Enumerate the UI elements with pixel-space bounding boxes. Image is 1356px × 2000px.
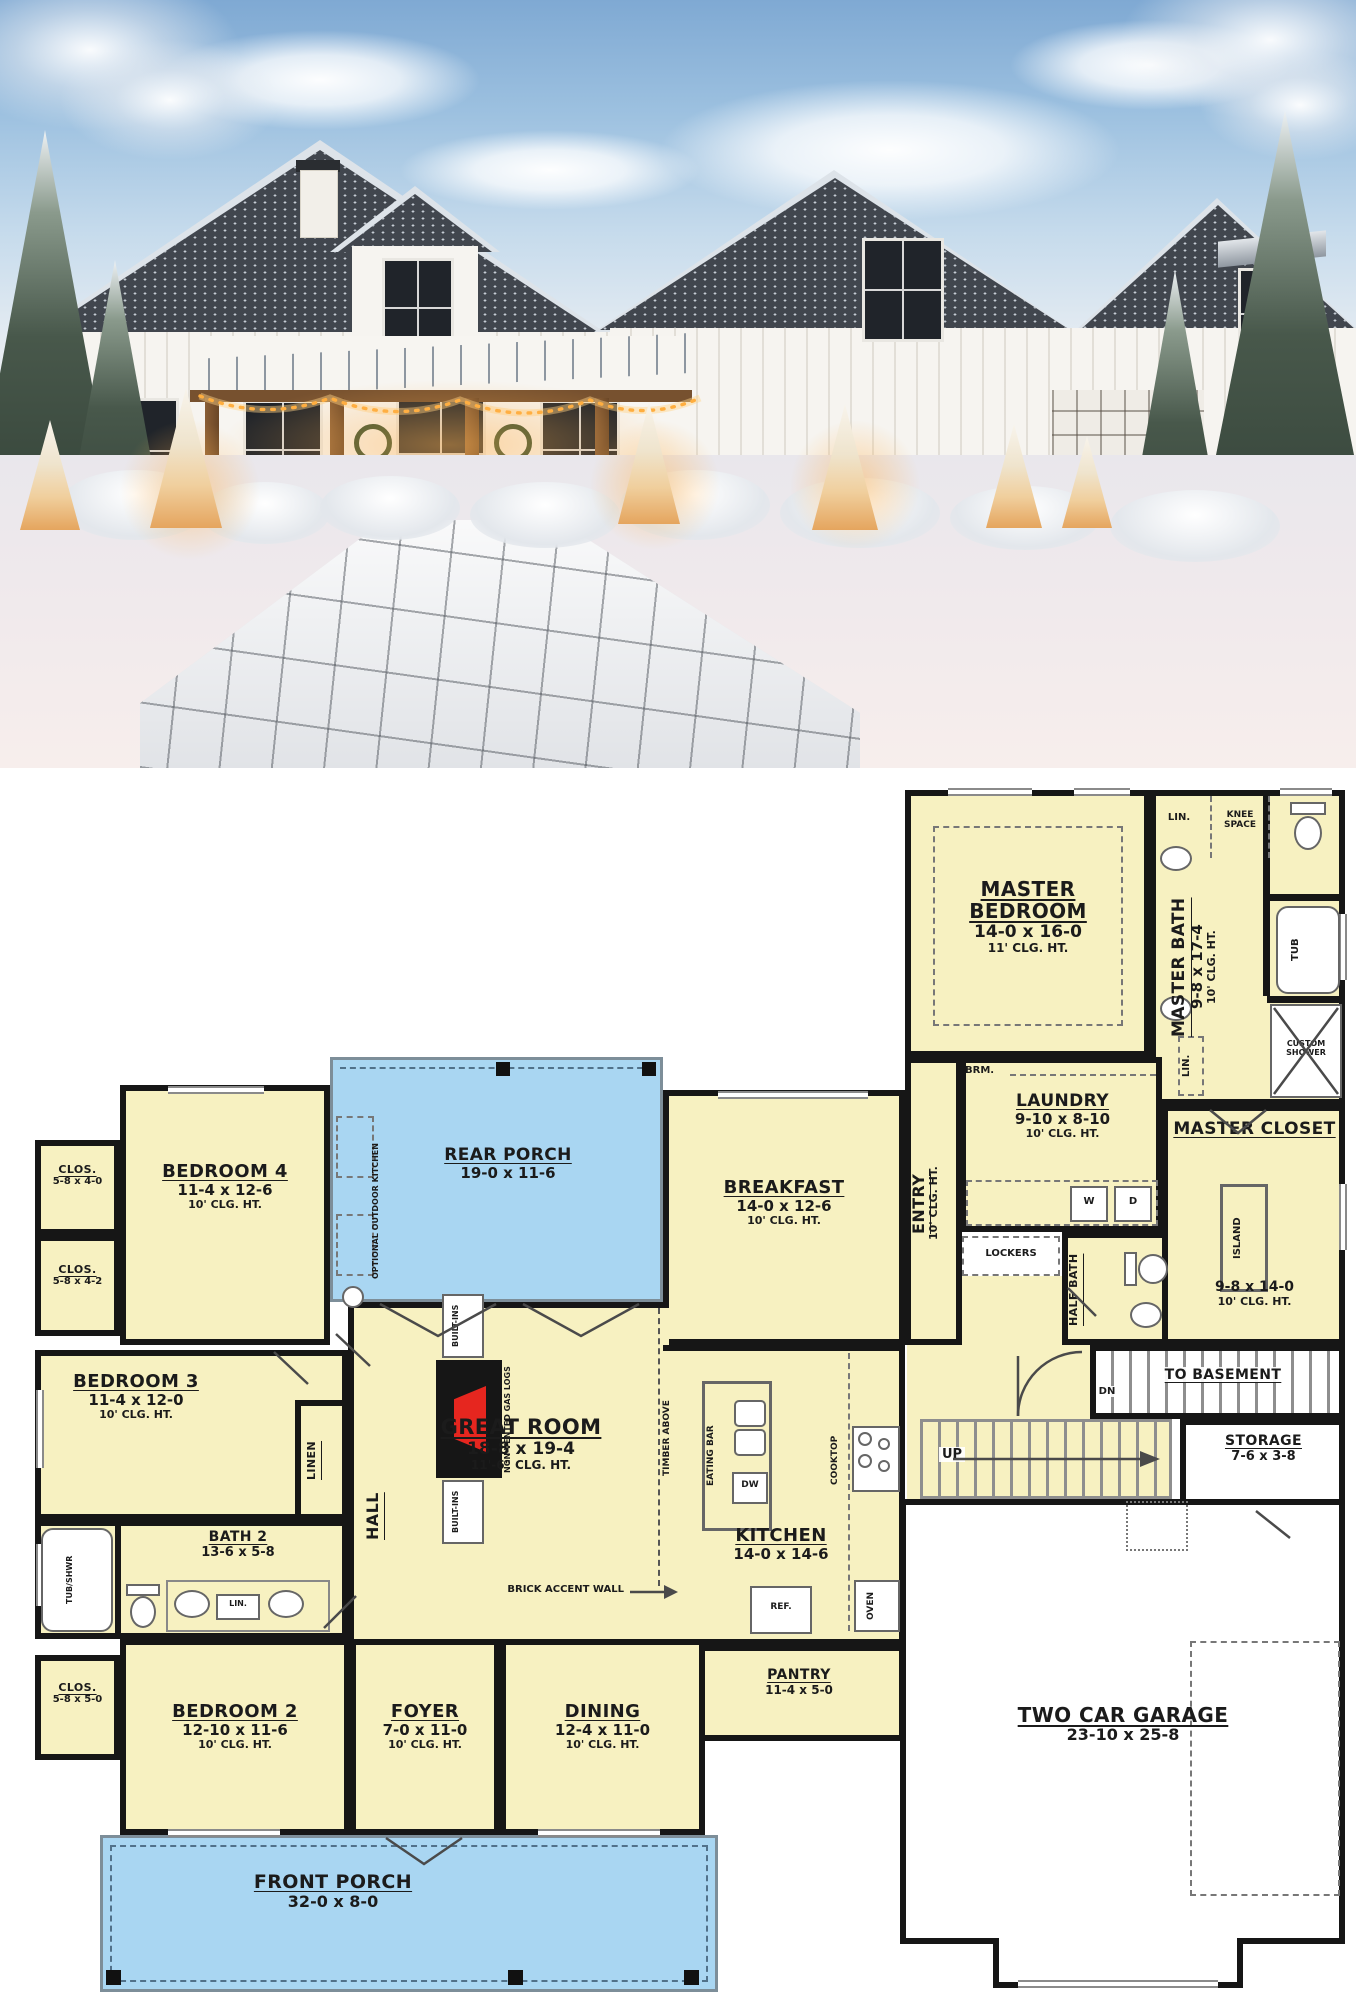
toilet-icon: [1124, 1252, 1137, 1286]
outdoor-grill-icon: [342, 1286, 364, 1308]
broom-label: BRM.: [965, 1065, 1005, 1076]
label-entry: ENTRY 10' CLG. HT.: [910, 1116, 958, 1291]
lockers-label: LOCKERS: [962, 1248, 1060, 1259]
timber-above-line: [658, 1308, 660, 1586]
bath-partition: [1270, 894, 1345, 901]
label-rear-porch: REAR PORCH 19-0 x 11-6: [413, 1146, 603, 1182]
label-closet2: CLOS. 5-8 x 5-0: [40, 1682, 115, 1706]
bath-partition: [1267, 996, 1345, 1003]
garage-door: [1018, 1980, 1218, 1988]
window: [168, 1086, 264, 1094]
room-closet2: [35, 1655, 120, 1760]
dryer-label: D: [1114, 1196, 1152, 1207]
label-pantry: PANTRY 11-4 x 5-0: [724, 1668, 874, 1697]
label-bedroom2: BEDROOM 2 12-10 x 11-6 10' CLG. HT.: [135, 1702, 335, 1751]
dn-label: DN: [1094, 1386, 1120, 1397]
burner: [858, 1432, 872, 1446]
sink-icon: [1130, 1302, 1162, 1328]
knee-space-label: KNEE SPACE: [1210, 810, 1270, 830]
label-hall: HALL: [364, 1464, 398, 1568]
broom-divider: [1010, 1074, 1156, 1076]
built-ins-label: BUILT-INS: [452, 1298, 474, 1354]
timber-above-label: TIMBER ABOVE: [662, 1378, 678, 1498]
garage-attic-outline: [1190, 1641, 1340, 1896]
window: [1339, 1184, 1347, 1250]
bath2-partition: [115, 1526, 121, 1633]
right-gable-window: [862, 238, 944, 342]
label-foyer: FOYER 7-0 x 11-0 10' CLG. HT.: [365, 1702, 485, 1751]
label-storage: STORAGE 7-6 x 3-8: [1186, 1434, 1341, 1464]
room-closet4: [35, 1140, 120, 1235]
window: [36, 1390, 44, 1468]
toilet-icon: [1290, 802, 1326, 815]
burner: [878, 1460, 890, 1472]
window: [948, 788, 1032, 796]
burner: [878, 1438, 890, 1450]
chimney-stack: [300, 170, 338, 238]
front-porch-edge: [110, 1845, 708, 1982]
label-dining: DINING 12-4 x 11-0 10' CLG. HT.: [515, 1702, 690, 1751]
label-great-room: GREAT ROOM 18-8 x 19-4 11'-6" CLG. HT.: [406, 1416, 636, 1472]
porch-post: [106, 1970, 121, 1985]
cloud: [660, 80, 1120, 220]
label-front-porch: FRONT PORCH 32-0 x 8-0: [218, 1872, 448, 1911]
label-master-closet: MASTER CLOSET: [1172, 1120, 1337, 1139]
snowy-shrub: [320, 476, 460, 540]
cooktop-label: COOKTOP: [830, 1418, 848, 1502]
porch-post: [642, 1062, 656, 1076]
burner: [858, 1454, 872, 1468]
sink-icon: [268, 1590, 304, 1618]
lin-label: LIN.: [216, 1600, 260, 1609]
kitchen-sink-icon: [734, 1400, 766, 1427]
toilet-icon: [130, 1596, 156, 1628]
label-bedroom3: BEDROOM 3 11-4 x 12-0 10' CLG. HT.: [46, 1372, 226, 1421]
custom-shower-label: CUSTOM SHOWER: [1270, 1040, 1342, 1058]
house-photo: [0, 0, 1356, 768]
window: [1074, 788, 1130, 796]
garage-ceiling-break: [1126, 1501, 1188, 1551]
label-garage: TWO CAR GARAGE 23-10 x 25-8: [1008, 1704, 1238, 1744]
window: [168, 1829, 280, 1837]
brick-accent-label: BRICK ACCENT WALL: [506, 1584, 624, 1595]
label-closet3: CLOS. 5-8 x 4-2: [40, 1264, 115, 1288]
room-bedroom4: [120, 1085, 330, 1345]
sink-icon: [174, 1590, 210, 1618]
kitchen-sink-icon: [734, 1429, 766, 1456]
to-basement-label: TO BASEMENT: [1118, 1368, 1328, 1384]
window: [1280, 788, 1332, 796]
label-linen: LINEN: [306, 1414, 336, 1506]
dw-label: DW: [732, 1480, 768, 1490]
eating-bar-label: EATING BAR: [706, 1396, 724, 1516]
snowy-branches: [60, 40, 280, 160]
label-kitchen: KITCHEN 14-0 x 14-6: [706, 1526, 856, 1563]
washer-label: W: [1070, 1196, 1108, 1207]
label-closet4: CLOS. 5-8 x 4-0: [40, 1164, 115, 1188]
porch-post: [508, 1970, 523, 1985]
label-master-bath: MASTER BATH 9-8 x 17-4 10' CLG. HT.: [1170, 852, 1232, 1082]
toilet-icon: [1294, 816, 1322, 850]
kitchen-counter-line: [848, 1353, 850, 1631]
toilet-icon: [1138, 1254, 1168, 1284]
cloud: [400, 130, 700, 210]
label-breakfast: BREAKFAST 14-0 x 12-6 10' CLG. HT.: [694, 1178, 874, 1227]
outdoor-kitchen-label: OPTIONAL OUTDOOR KITCHEN: [372, 1106, 388, 1316]
window: [718, 1091, 868, 1099]
tub-shwr-label: TUB/SHWR: [66, 1538, 88, 1622]
label-bath2: BATH 2 13-6 x 5-8: [158, 1530, 318, 1560]
porch-post: [684, 1970, 699, 1985]
label-master-bedroom: MASTER BEDROOM 14-0 x 16-0 11' CLG. HT.: [928, 878, 1128, 955]
island-label: ISLAND: [1232, 1198, 1256, 1278]
outdoor-kitchen-counter: [336, 1116, 374, 1178]
label-master-closet-dims: 9-8 x 14-0 10' CLG. HT.: [1172, 1280, 1337, 1308]
label-laundry: LAUNDRY 9-10 x 8-10 10' CLG. HT.: [970, 1092, 1155, 1140]
snowy-shrub: [1110, 490, 1280, 562]
built-ins-label: BUILT-INS: [452, 1484, 474, 1540]
floor-plan: TUB CUSTOM SHOWER LIN. KNEE SPACE LIN. B…: [18, 786, 1350, 2000]
tub-label: TUB: [1290, 924, 1326, 976]
window: [1339, 914, 1347, 980]
label-bedroom4: BEDROOM 4 11-4 x 12-6 10' CLG. HT.: [136, 1162, 314, 1211]
toilet-icon: [126, 1584, 160, 1596]
label-half-bath: HALF BATH: [1068, 1240, 1098, 1340]
outdoor-kitchen-counter: [336, 1214, 374, 1276]
ref-label: REF.: [750, 1602, 812, 1612]
window: [538, 1829, 660, 1837]
up-label: UP: [934, 1448, 970, 1463]
lin-label: LIN.: [1154, 812, 1204, 823]
porch-post: [496, 1062, 510, 1076]
oven-label: OVEN: [866, 1586, 888, 1626]
